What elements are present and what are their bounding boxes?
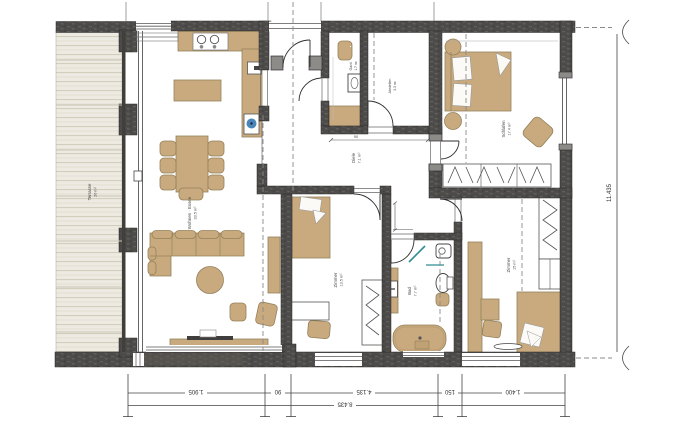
svg-text:17.4 m²: 17.4 m² — [508, 122, 512, 136]
svg-text:11.435: 11.435 — [607, 183, 613, 202]
svg-text:3.3 m²: 3.3 m² — [393, 80, 397, 90]
svg-text:Terrasse: Terrasse — [87, 183, 92, 200]
svg-text:15 m²: 15 m² — [513, 259, 517, 269]
svg-text:13.5 m²: 13.5 m² — [340, 273, 344, 287]
svg-text:33.5 m²: 33.5 m² — [194, 206, 198, 220]
svg-text:Wohnen · Essen: Wohnen · Essen — [187, 196, 192, 229]
svg-text:1.7 m²: 1.7 m² — [354, 60, 358, 70]
svg-text:Schlafen: Schlafen — [501, 120, 506, 138]
svg-text:1.905: 1.905 — [188, 388, 204, 394]
svg-text:Bad: Bad — [407, 287, 412, 295]
svg-text:26 m²: 26 m² — [94, 186, 98, 196]
svg-text:1.400: 1.400 — [505, 388, 521, 394]
svg-text:8.435: 8.435 — [337, 401, 353, 407]
svg-text:Abstellen: Abstellen — [388, 79, 392, 94]
svg-text:4.135: 4.135 — [356, 388, 372, 394]
svg-text:Zimmer: Zimmer — [506, 257, 511, 272]
svg-text:90: 90 — [274, 388, 281, 394]
svg-text:7.7 m²: 7.7 m² — [414, 285, 418, 296]
svg-text:Gard.: Gard. — [349, 62, 353, 71]
svg-text:Zimmer: Zimmer — [333, 272, 338, 287]
svg-text:7.1 m²: 7.1 m² — [358, 152, 362, 163]
svg-text:150: 150 — [444, 388, 455, 394]
svg-text:Diele: Diele — [351, 152, 356, 163]
svg-text:90: 90 — [354, 134, 359, 139]
